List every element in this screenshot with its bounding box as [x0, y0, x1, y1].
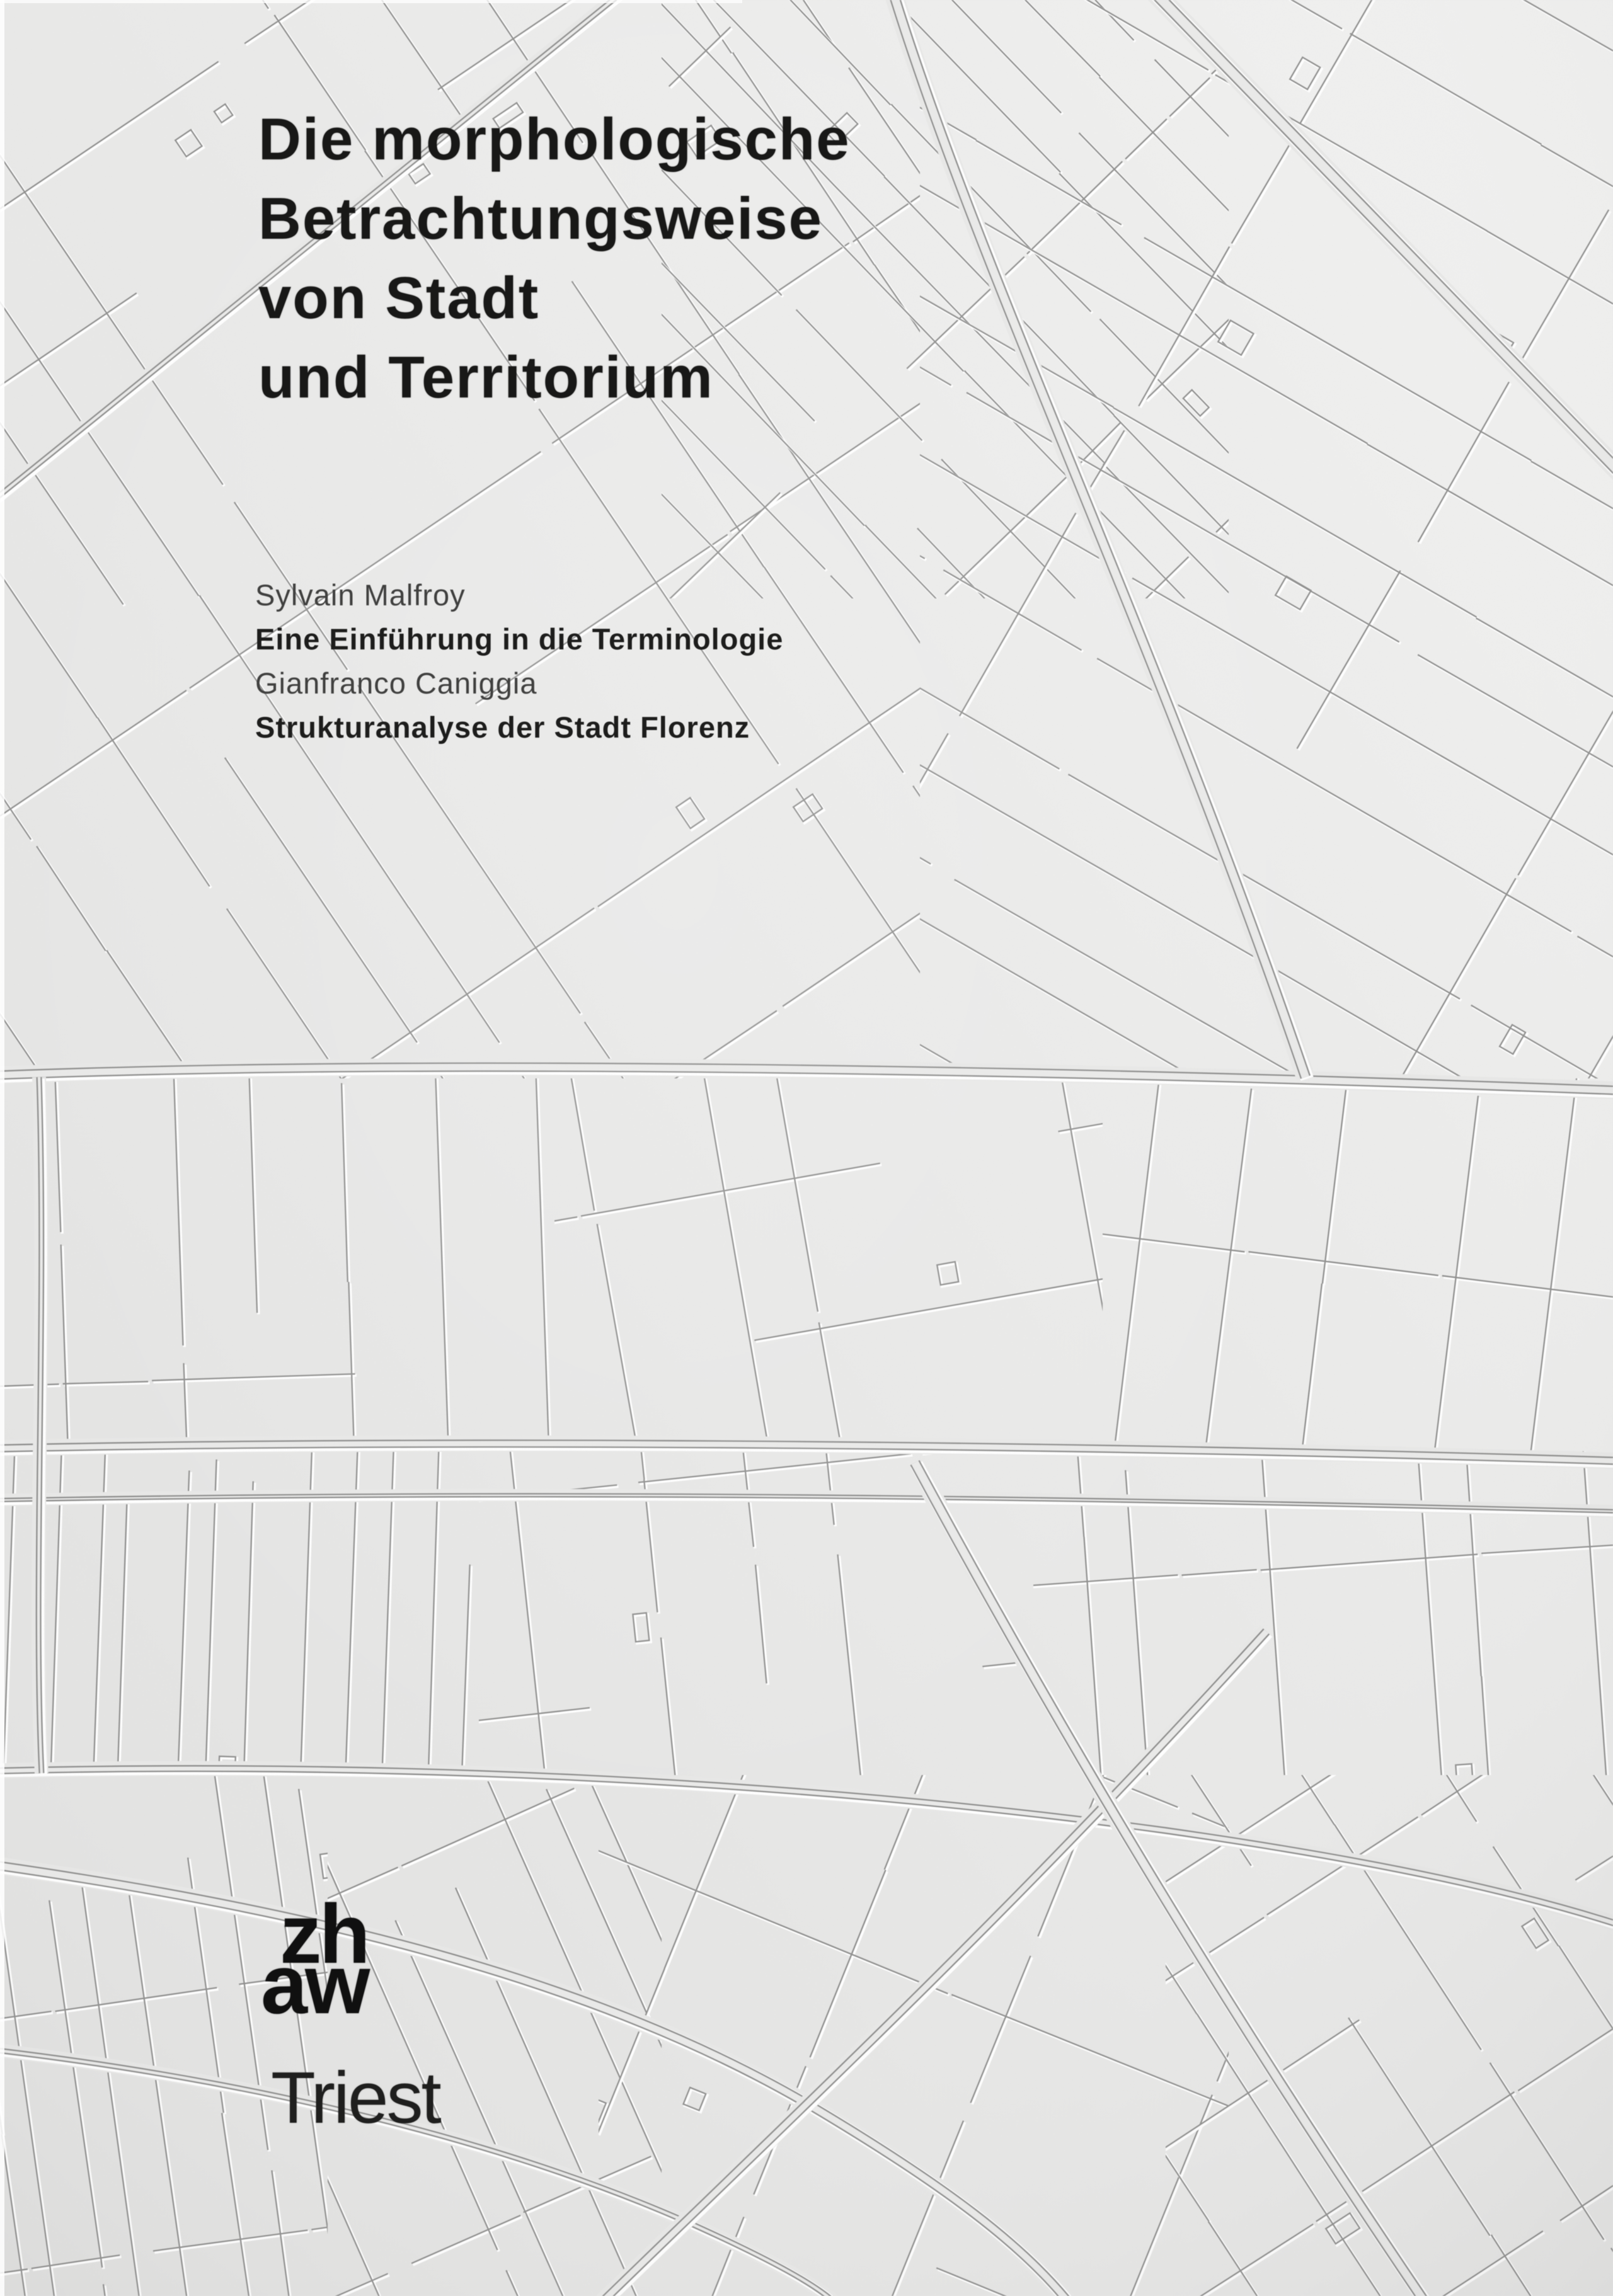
scan-edge-left: [0, 0, 4, 2296]
book-title-line: Die morphologische: [258, 100, 851, 179]
author-name: Sylvain Malfroy: [255, 573, 783, 617]
publisher-imprint: Triest: [271, 2061, 440, 2134]
book-title-line: Betrachtungsweise: [258, 179, 851, 258]
book-title-line: von Stadt: [258, 258, 851, 338]
zhaw-logo-line2: aw: [261, 1943, 367, 2027]
book-title: Die morphologische Betrachtungsweise von…: [258, 100, 851, 417]
scan-edge-top: [0, 0, 742, 3]
author-name: Gianfranco Caniggia: [255, 661, 783, 705]
book-cover: Die morphologische Betrachtungsweise von…: [0, 0, 1613, 2296]
book-title-line: und Territorium: [258, 338, 851, 417]
work-subtitle: Eine Einführung in die Terminologie: [255, 617, 783, 661]
work-subtitle: Strukturanalyse der Stadt Florenz: [255, 705, 783, 750]
credits-block: Sylvain Malfroy Eine Einführung in die T…: [255, 573, 783, 750]
